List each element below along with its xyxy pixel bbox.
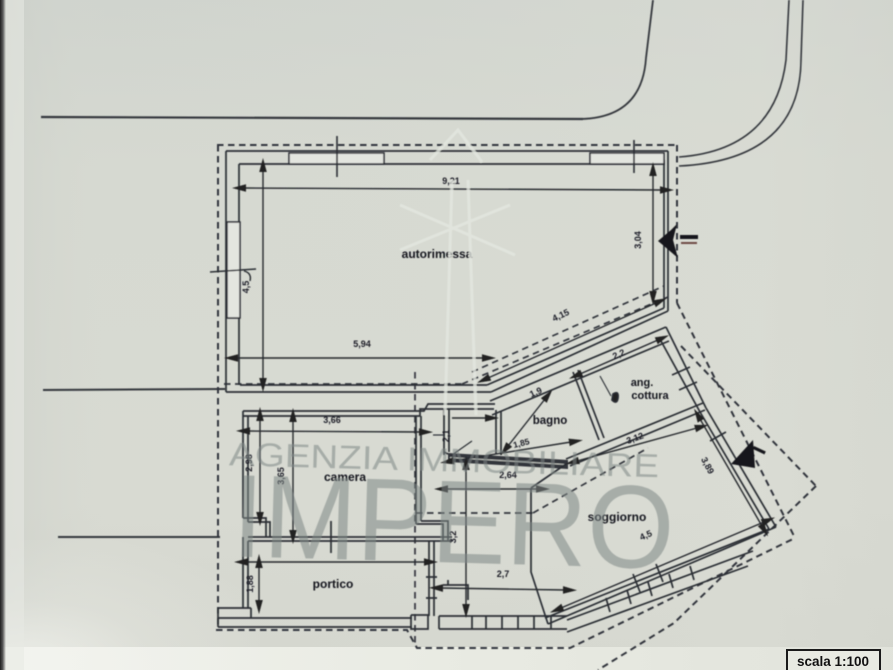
- svg-text:ang.: ang.: [631, 377, 654, 389]
- svg-text:IMPERO: IMPERO: [231, 450, 677, 594]
- svg-text:3,04: 3,04: [633, 231, 643, 249]
- svg-text:scala 1:100: scala 1:100: [797, 654, 869, 669]
- svg-text:cottura: cottura: [631, 390, 669, 402]
- svg-text:4,5: 4,5: [241, 281, 251, 294]
- svg-text:autorimessa: autorimessa: [402, 247, 473, 261]
- svg-text:bagno: bagno: [533, 415, 568, 427]
- svg-text:3,66: 3,66: [323, 415, 341, 425]
- svg-text:5,94: 5,94: [353, 339, 371, 349]
